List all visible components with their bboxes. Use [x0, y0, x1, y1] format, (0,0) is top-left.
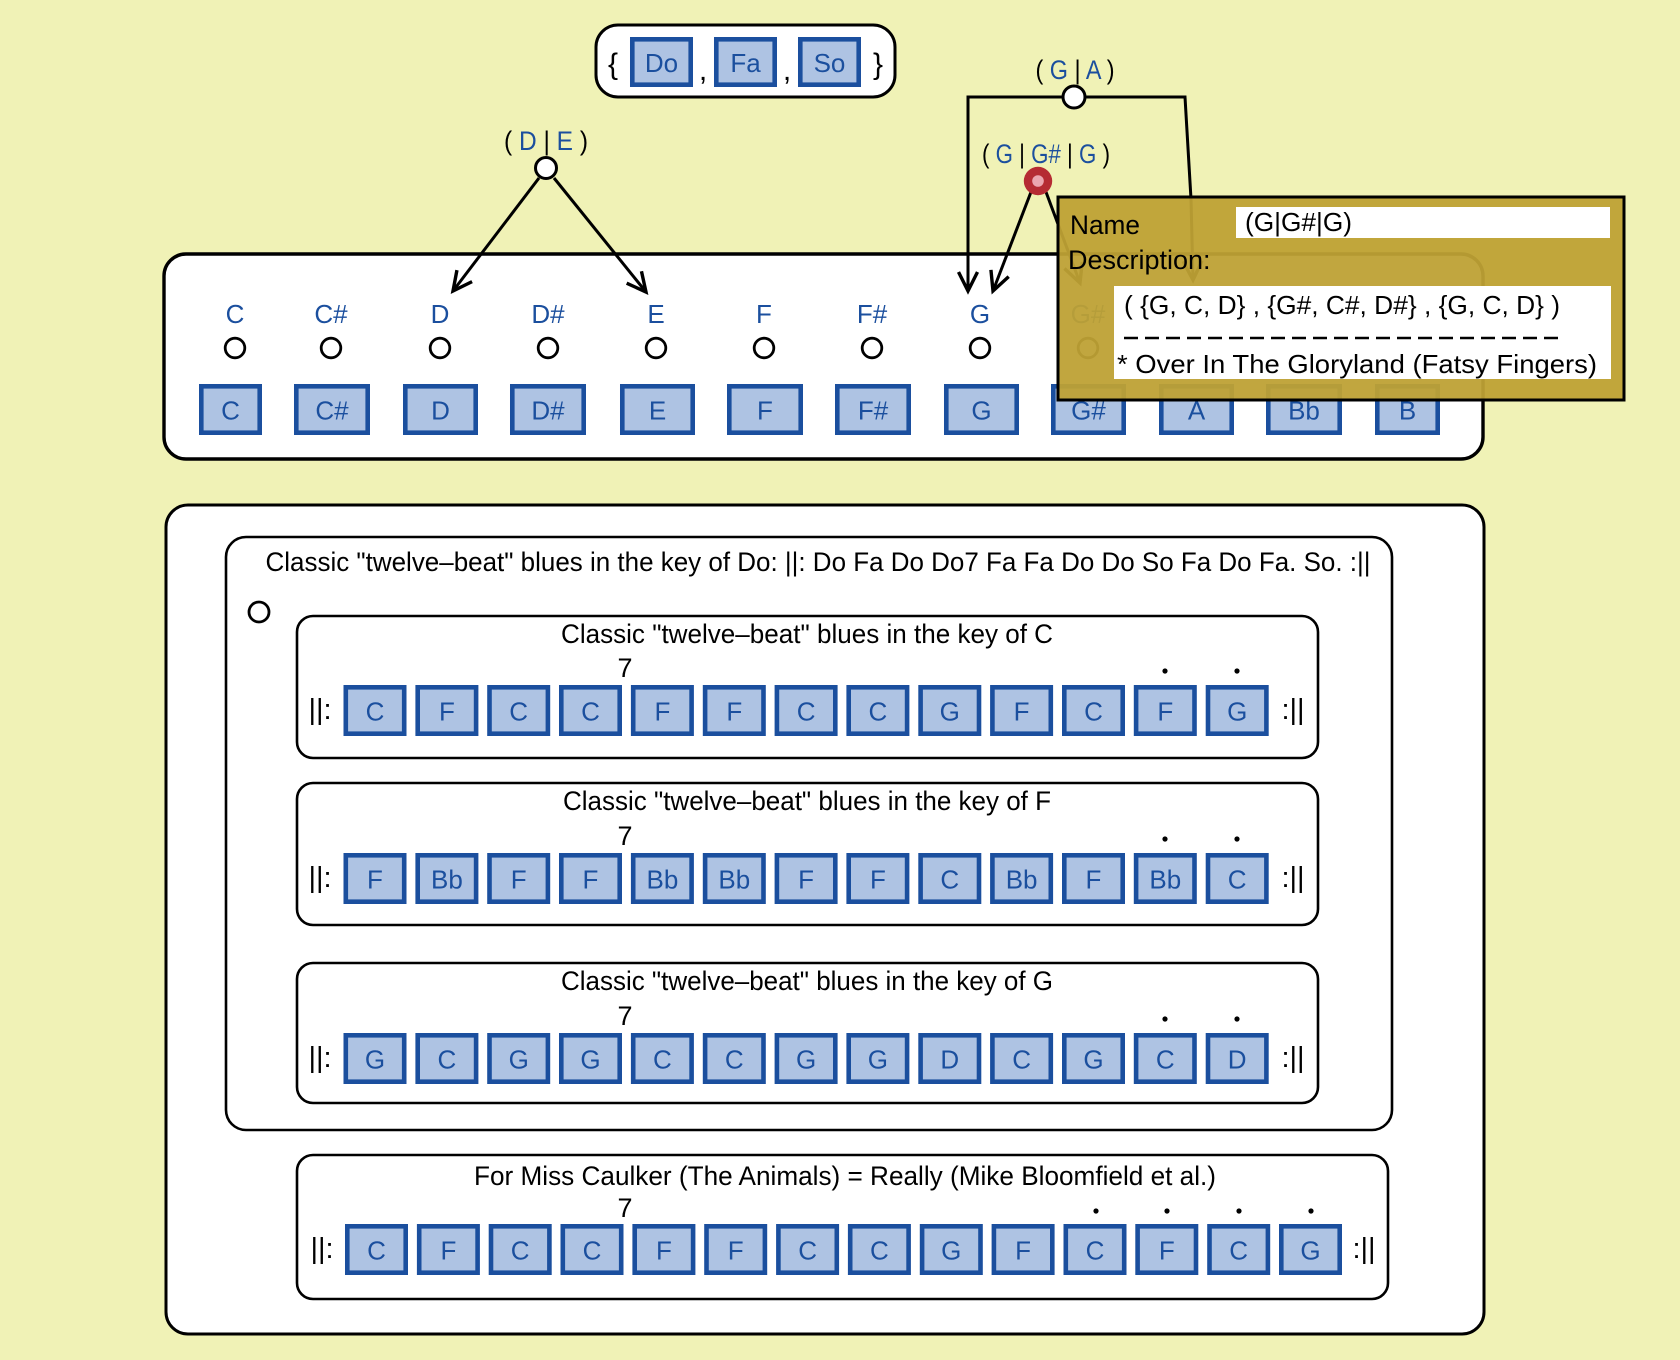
svg-text:C: C	[725, 1045, 744, 1075]
svg-text:7: 7	[617, 1001, 632, 1031]
svg-text:C: C	[797, 697, 816, 727]
svg-text:(G|G#|G): (G|G#|G)	[1245, 207, 1352, 237]
svg-text:F: F	[583, 865, 599, 895]
svg-text:C: C	[367, 1236, 386, 1266]
svg-text::||: :||	[1281, 862, 1304, 894]
svg-text:F: F	[1157, 697, 1173, 727]
svg-text:Classic "twelve–beat" blues in: Classic "twelve–beat" blues in the key o…	[561, 619, 1053, 649]
svg-text:F#: F#	[858, 396, 889, 426]
svg-text:C: C	[511, 1236, 530, 1266]
svg-text:Classic "twelve–beat" blues in: Classic "twelve–beat" blues in the key o…	[563, 786, 1051, 816]
svg-text:7: 7	[617, 653, 632, 683]
svg-text:C: C	[1229, 1236, 1248, 1266]
svg-text:G: G	[868, 1045, 888, 1075]
svg-text:Name: Name	[1070, 210, 1140, 240]
svg-text:F#: F#	[857, 299, 888, 329]
svg-text:C: C	[221, 396, 240, 426]
svg-text:F: F	[798, 865, 814, 895]
svg-text::||: :||	[1281, 694, 1304, 726]
svg-text:F: F	[1086, 865, 1102, 895]
svg-text:F: F	[439, 697, 455, 727]
svg-text:||:: ||:	[308, 694, 331, 726]
svg-text:D: D	[940, 1045, 959, 1075]
svg-text:F: F	[726, 697, 742, 727]
svg-text:C: C	[653, 1045, 672, 1075]
svg-text:F: F	[367, 865, 383, 895]
svg-text:D#: D#	[531, 299, 565, 329]
svg-text:F: F	[1015, 1236, 1031, 1266]
svg-text:F: F	[511, 865, 527, 895]
svg-text:C: C	[1086, 1236, 1105, 1266]
svg-text:So: So	[814, 48, 846, 78]
svg-text:F: F	[728, 1236, 744, 1266]
svg-text:G: G	[796, 1045, 816, 1075]
svg-text:C#: C#	[314, 299, 348, 329]
svg-text:Classic "twelve–beat" blues in: Classic "twelve–beat" blues in the key o…	[266, 547, 1371, 577]
svg-text:C: C	[1012, 1045, 1031, 1075]
svg-text:( G | G# | G ): ( G | G# | G )	[982, 139, 1110, 169]
svg-text:Bb: Bb	[431, 865, 463, 895]
svg-text:,: ,	[699, 54, 707, 87]
svg-text:F: F	[1014, 697, 1030, 727]
svg-text:C: C	[583, 1236, 602, 1266]
svg-text:G: G	[580, 1045, 600, 1075]
svg-text:Classic "twelve–beat" blues in: Classic "twelve–beat" blues in the key o…	[561, 966, 1053, 996]
svg-text:{: {	[608, 48, 618, 81]
svg-text:Bb: Bb	[718, 865, 750, 895]
svg-text:F: F	[440, 1236, 456, 1266]
svg-text:F: F	[1159, 1236, 1175, 1266]
svg-text:Do: Do	[645, 48, 678, 78]
svg-text:||:: ||:	[310, 1233, 333, 1265]
svg-text:Fa: Fa	[730, 48, 761, 78]
svg-text:7: 7	[617, 821, 632, 851]
svg-text:G: G	[940, 697, 960, 727]
svg-text:For Miss Caulker (The Animals): For Miss Caulker (The Animals) = Really …	[474, 1161, 1216, 1191]
svg-text:F: F	[870, 865, 886, 895]
svg-text:G: G	[509, 1045, 529, 1075]
svg-text:* Over In The Gloryland (Fatsy: * Over In The Gloryland (Fatsy Fingers)	[1117, 349, 1597, 379]
svg-text:( {G, C, D} , {G#, C#, D#} , {: ( {G, C, D} , {G#, C#, D#} , {G, C, D} )	[1124, 290, 1560, 320]
svg-text:E: E	[647, 299, 664, 329]
svg-text:C#: C#	[315, 396, 349, 426]
svg-text:G: G	[941, 1236, 961, 1266]
svg-text:( G | A ): ( G | A )	[1036, 55, 1115, 85]
svg-text:D: D	[431, 299, 450, 329]
svg-text:G: G	[1227, 697, 1247, 727]
svg-text:G: G	[971, 396, 991, 426]
svg-text:C: C	[798, 1236, 817, 1266]
svg-text:C: C	[1156, 1045, 1175, 1075]
svg-text:C: C	[870, 1236, 889, 1266]
svg-text:E: E	[649, 396, 666, 426]
svg-text:C: C	[581, 697, 600, 727]
svg-text:G: G	[365, 1045, 385, 1075]
svg-text:||:: ||:	[308, 1042, 331, 1074]
svg-text:Bb: Bb	[646, 865, 678, 895]
svg-text:F: F	[656, 1236, 672, 1266]
svg-text:C: C	[1228, 865, 1247, 895]
svg-text:C: C	[509, 697, 528, 727]
svg-text:C: C	[869, 697, 888, 727]
svg-text:D: D	[431, 396, 450, 426]
svg-text:( D | E ): ( D | E )	[504, 126, 588, 156]
svg-text:G: G	[1300, 1236, 1320, 1266]
svg-text:Bb: Bb	[1006, 865, 1038, 895]
svg-text:F: F	[756, 299, 772, 329]
svg-text:C: C	[1084, 697, 1103, 727]
svg-text:D: D	[1228, 1045, 1247, 1075]
svg-text:,: ,	[783, 54, 791, 87]
svg-text:7: 7	[617, 1193, 632, 1223]
svg-text:D#: D#	[531, 396, 565, 426]
svg-text:C: C	[226, 299, 245, 329]
svg-text:Bb: Bb	[1149, 865, 1181, 895]
svg-text:F: F	[654, 697, 670, 727]
svg-text:||:: ||:	[308, 862, 331, 894]
svg-text::||: :||	[1352, 1233, 1375, 1265]
svg-text:}: }	[873, 48, 883, 81]
svg-text:F: F	[757, 396, 773, 426]
svg-text:G: G	[970, 299, 990, 329]
svg-text:C: C	[438, 1045, 457, 1075]
svg-text:C: C	[366, 697, 385, 727]
svg-text:C: C	[940, 865, 959, 895]
svg-text:G: G	[1083, 1045, 1103, 1075]
svg-text:Description:: Description:	[1068, 245, 1211, 275]
svg-text::||: :||	[1281, 1042, 1304, 1074]
